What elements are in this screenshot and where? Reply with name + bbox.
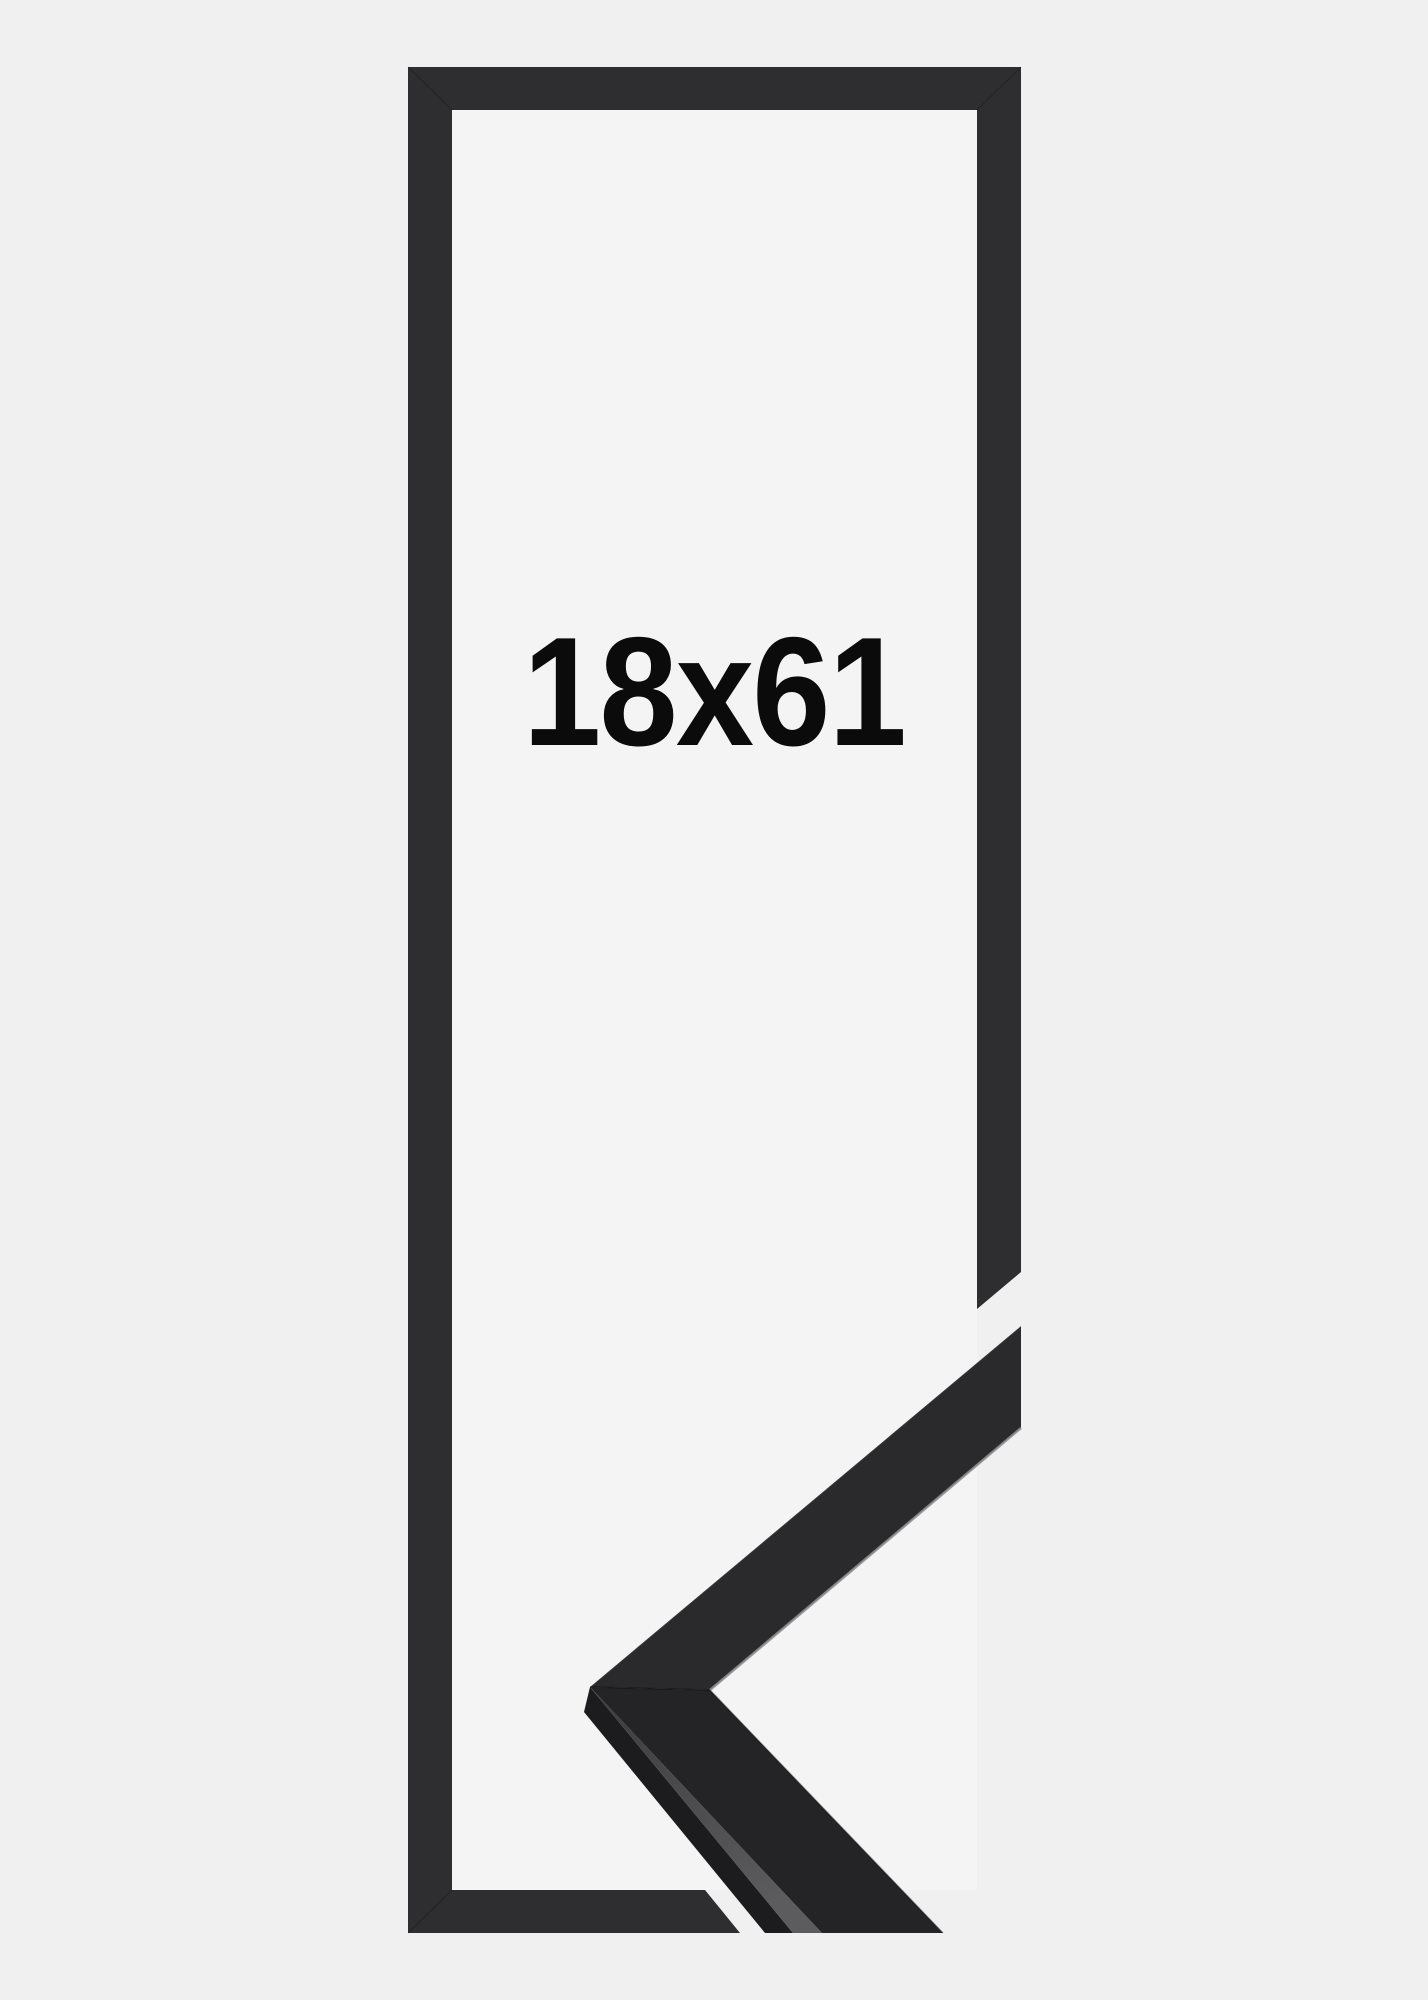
frame-product-photo: 18x61 — [0, 0, 1428, 2000]
product-image: 18x61 — [0, 0, 1428, 2000]
size-label: 18x61 — [523, 605, 905, 778]
